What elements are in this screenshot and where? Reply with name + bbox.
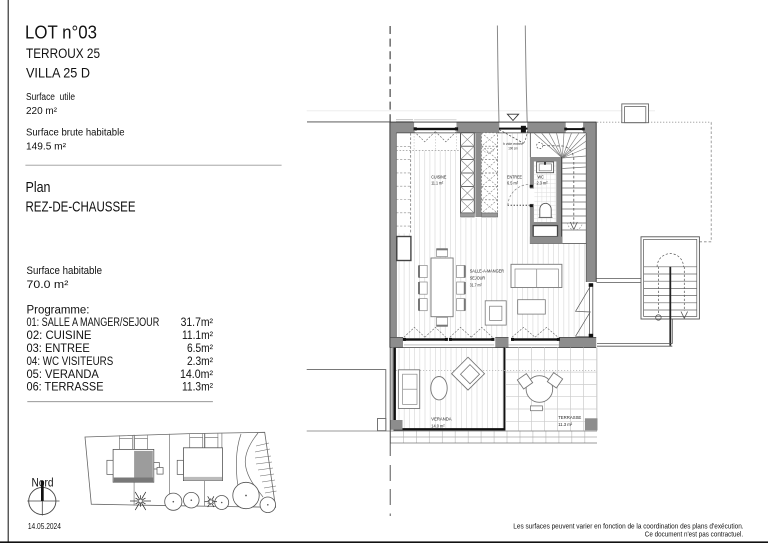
svg-text:190 cm: 190 cm [508,147,518,151]
svg-text:06: TERRASSE: 06: TERRASSE [27,382,104,394]
svg-text:LOT n°03: LOT n°03 [25,22,97,43]
svg-text:Surface habitable: Surface habitable [27,265,103,277]
svg-text:Surface brute habitable: Surface brute habitable [26,128,125,139]
svg-text:31.7 m²: 31.7 m² [470,282,482,288]
svg-text:6.5m²: 6.5m² [187,343,213,355]
svg-text:Les surfaces peuvent varier en: Les surfaces peuvent varier en fonction … [513,524,743,531]
svg-text:ENTREE: ENTREE [507,174,523,180]
svg-text:Nord: Nord [32,477,54,489]
svg-text:Programme:: Programme: [27,305,90,317]
svg-text:2.3 m²: 2.3 m² [537,181,548,187]
svg-text:TERROUX 25: TERROUX 25 [26,46,100,61]
svg-text:05: VERANDA: 05: VERANDA [27,369,100,381]
svg-text:Surface utile: Surface utile [26,92,75,103]
svg-text:14.0 m²: 14.0 m² [431,423,444,429]
svg-text:03: ENTREE: 03: ENTREE [27,343,91,355]
svg-text:SALLE-A-MANGER: SALLE-A-MANGER [470,268,505,274]
svg-text:6.5 m²: 6.5 m² [507,181,518,187]
svg-text:REZ-DE-CHAUSSEE: REZ-DE-CHAUSSEE [26,199,136,216]
svg-text:11.3 m²: 11.3 m² [558,422,572,428]
svg-text:14.05.2024: 14.05.2024 [28,522,61,531]
svg-text:04: WC VISITEURS: 04: WC VISITEURS [27,356,114,368]
svg-text:149.5 m²: 149.5 m² [26,142,67,153]
svg-text:14.0m²: 14.0m² [180,369,213,381]
svg-text:2.3m²: 2.3m² [187,356,213,368]
svg-text:Ce document n'est pas contract: Ce document n'est pas contractuel. [645,531,743,538]
svg-text:WC: WC [538,174,545,180]
svg-text:TERRASSE: TERRASSE [558,415,582,421]
svg-text:CUISINE: CUISINE [431,174,447,180]
svg-text:11.1 m²: 11.1 m² [431,181,443,187]
svg-text:VILLA 25 D: VILLA 25 D [26,66,90,81]
svg-text:11.1m²: 11.1m² [182,330,213,342]
svg-text:11.3m²: 11.3m² [182,382,213,394]
svg-text:SEJOUR: SEJOUR [470,275,486,281]
svg-text:01: SALLE A MANGER/SEJOUR: 01: SALLE A MANGER/SEJOUR [27,317,160,329]
svg-text:70.0 m²: 70.0 m² [27,279,69,291]
svg-text:Plan: Plan [26,179,51,196]
svg-text:VERANDA: VERANDA [431,417,452,423]
svg-text:31.7m²: 31.7m² [181,317,214,329]
svg-text:220 m²: 220 m² [26,106,58,117]
svg-text:h vide entrée: h vide entrée [503,142,523,146]
svg-text:02: CUISINE: 02: CUISINE [27,330,92,342]
